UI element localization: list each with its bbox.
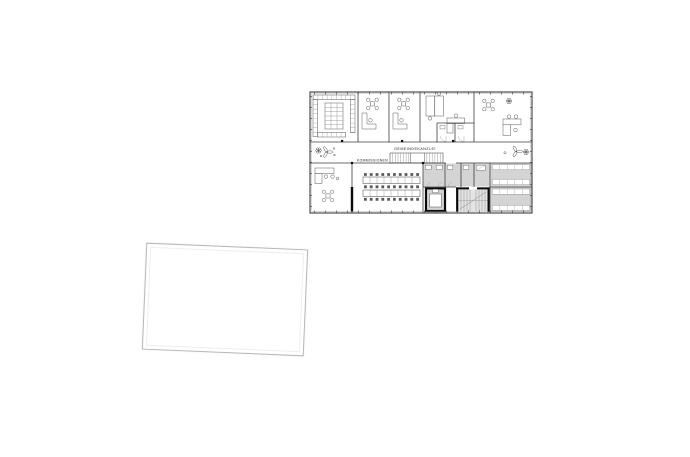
conference-table bbox=[363, 177, 420, 184]
grid-table bbox=[325, 103, 343, 129]
label-gemeindekanzlei: GEMEINDEKANZLEI bbox=[394, 147, 436, 151]
plant-icon bbox=[512, 146, 522, 158]
corridor-plants-left bbox=[316, 146, 336, 158]
office-b bbox=[393, 98, 409, 129]
page-canvas: GEMEINDEKANZLEI KOMMISSIONEN bbox=[0, 0, 690, 457]
label-kommissionen: KOMMISSIONEN bbox=[357, 158, 388, 162]
office-a bbox=[362, 98, 378, 129]
flower-icon bbox=[506, 98, 512, 103]
flower-icon bbox=[316, 148, 322, 153]
commissions-office bbox=[315, 168, 339, 202]
plant-icon bbox=[323, 146, 333, 158]
flower-icon bbox=[523, 149, 529, 154]
archive-room bbox=[313, 95, 355, 137]
blank-sheet bbox=[142, 243, 308, 357]
corridor-plants-right bbox=[504, 146, 529, 158]
corridor-staircase bbox=[390, 153, 443, 163]
meeting-room bbox=[363, 175, 420, 200]
office-d bbox=[483, 98, 521, 135]
conference-table bbox=[363, 190, 420, 197]
floor-plan: GEMEINDEKANZLEI KOMMISSIONEN bbox=[306, 82, 536, 216]
